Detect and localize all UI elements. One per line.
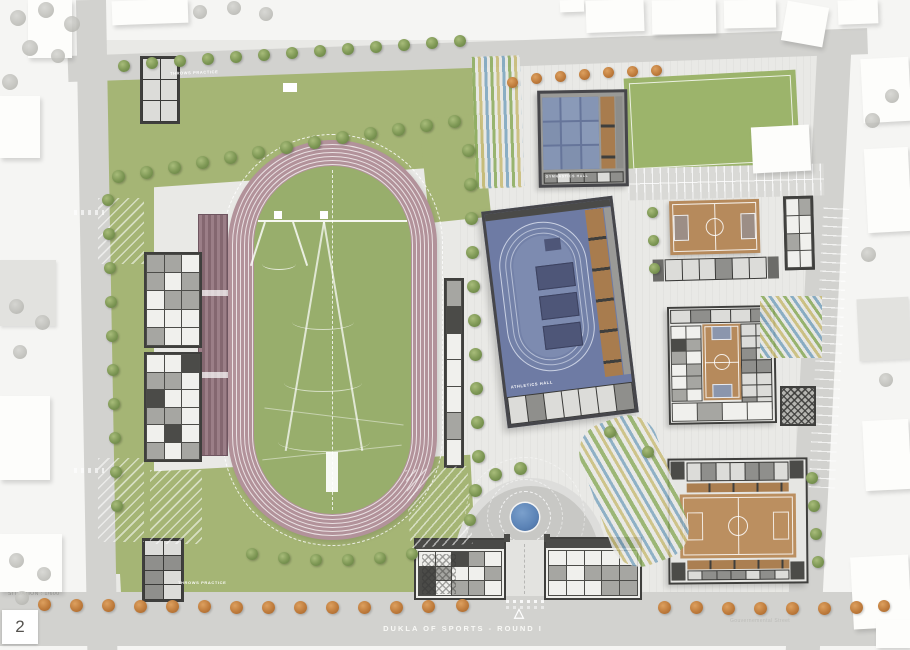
room-cell: [614, 383, 634, 411]
room-cell: [485, 567, 501, 581]
room-cell: [161, 101, 178, 121]
gym-panel: [562, 97, 580, 120]
tree-icon: [106, 330, 118, 342]
gate-post: [504, 534, 510, 542]
tree-icon: [286, 47, 298, 59]
tree-icon: [118, 60, 130, 72]
tree-icon: [146, 57, 158, 69]
page-number: 2: [15, 617, 24, 637]
tree-icon: [464, 178, 477, 191]
room-cell: [671, 327, 685, 339]
tree-icon: [105, 296, 117, 308]
room-cell: [145, 585, 163, 599]
tree-icon: [489, 468, 502, 481]
sector-arc: [292, 314, 354, 330]
tree-icon: [426, 37, 438, 49]
tree-icon: [865, 113, 880, 128]
room-cell: [716, 259, 732, 279]
tree-icon: [462, 144, 475, 157]
room-cell: [447, 413, 461, 438]
tree-icon: [555, 71, 566, 82]
tree-icon: [2, 74, 18, 90]
bball-court: [702, 324, 741, 401]
room-cell: [672, 377, 686, 389]
tree-icon: [786, 602, 799, 615]
tree-icon: [280, 141, 293, 154]
room-cell: [742, 385, 756, 396]
ath-dark-rect: [539, 292, 580, 320]
tree-icon: [690, 601, 703, 614]
tree-icon: [104, 262, 116, 274]
tree-icon: [531, 73, 542, 84]
grandstand-gap: [198, 372, 228, 378]
room-cell: [775, 571, 789, 579]
room-cell: [597, 385, 617, 413]
tree-icon: [112, 170, 125, 183]
bball-bottom: [672, 401, 773, 422]
room-cell: [165, 408, 182, 425]
corner-block: [789, 460, 803, 478]
room-cell: [745, 463, 759, 480]
room-cell: [579, 387, 599, 415]
room-cell: [698, 403, 722, 420]
room-cell: [147, 373, 164, 390]
room-cell: [567, 566, 584, 580]
tree-icon: [168, 161, 181, 174]
tree-icon: [647, 207, 658, 218]
tree-icon: [448, 115, 461, 128]
room-cell: [760, 463, 774, 480]
tree-icon: [370, 41, 382, 53]
gym-panel: [542, 97, 560, 120]
street-label: Gouvernemental Street: [730, 618, 790, 624]
room-cell: [620, 581, 637, 595]
gym-panel: [543, 147, 561, 170]
room-cell: [182, 373, 199, 390]
room-cell: [750, 258, 766, 278]
room-cell: [731, 463, 745, 480]
gym-panel: [582, 146, 600, 169]
room-cell: [746, 571, 760, 579]
sector-line: [264, 407, 403, 425]
room-cell: [787, 251, 799, 268]
room-cell: [182, 425, 199, 442]
site-plan: GYMNASTICS HALL ATHLETICS HALL: [0, 0, 910, 650]
room-cell: [165, 310, 182, 327]
tree-icon: [603, 67, 614, 78]
room-cell: [147, 425, 164, 442]
room-cell: [164, 585, 182, 599]
city-block: [585, 0, 644, 33]
tree-icon: [885, 89, 899, 103]
tree-icon: [364, 127, 377, 140]
tree-icon: [103, 228, 115, 240]
gym-blue-panels: [542, 97, 599, 170]
room-cell: [447, 387, 461, 412]
court-key: [773, 512, 789, 540]
entrance-building-left: [414, 538, 506, 600]
room-cell: [585, 566, 602, 580]
room-cell: [182, 310, 199, 327]
room-cell: [526, 394, 546, 422]
room-cell: [165, 390, 182, 407]
room-cell: [182, 255, 199, 272]
city-block: [876, 620, 910, 648]
room-cell: [742, 361, 756, 372]
grandstand-gap: [198, 290, 228, 296]
court-ne-band: [665, 257, 768, 282]
bld-left-1: [144, 252, 202, 348]
room-cell: [549, 566, 566, 580]
room-cell: [567, 551, 584, 565]
room-cell: [165, 373, 182, 390]
room-cell: [666, 260, 682, 280]
room-cell: [182, 355, 199, 372]
gym-side-strip: [615, 96, 623, 168]
ath-dark-rect: [544, 237, 561, 251]
tree-icon: [469, 348, 482, 361]
room-cell: [787, 216, 799, 233]
room-cell: [447, 281, 461, 306]
bike-rack-annex: [780, 386, 816, 426]
room-cell: [544, 392, 564, 420]
tree-icon: [38, 2, 54, 18]
tree-icon: [420, 119, 433, 132]
tree-icon: [193, 5, 207, 19]
room-cell: [602, 581, 619, 595]
corner-block: [670, 461, 684, 479]
room-cell: [147, 355, 164, 372]
tree-icon: [64, 16, 80, 32]
tree-icon: [604, 426, 616, 438]
tree-icon: [456, 599, 469, 612]
corner-block: [790, 561, 804, 579]
room-cell: [748, 402, 772, 419]
tree-icon: [51, 49, 65, 63]
tree-icon: [465, 212, 478, 225]
room-cell: [672, 339, 686, 351]
room-cell: [567, 581, 584, 595]
tree-icon: [374, 552, 386, 564]
court-circle: [728, 516, 748, 536]
tree-icon: [471, 416, 484, 429]
room-cell: [147, 310, 164, 327]
page-number-box: 2: [2, 610, 38, 644]
tree-icon: [22, 40, 38, 56]
tree-icon: [507, 77, 518, 88]
room-cell: [165, 355, 182, 372]
room-cell: [672, 364, 686, 376]
room-cell: [800, 250, 812, 267]
room-cell: [757, 373, 771, 384]
court-ne-floor: [669, 199, 760, 255]
tree-icon: [109, 432, 121, 444]
tree-icon: [649, 263, 660, 274]
room-cell: [757, 361, 771, 372]
tree-icon: [406, 548, 418, 560]
room-cell: [723, 403, 747, 420]
ath-dark-rect: [535, 262, 576, 290]
room-cell: [145, 571, 163, 585]
tree-icon: [198, 600, 211, 613]
room-cell: [469, 581, 485, 595]
city-block: [112, 0, 189, 25]
court-key: [673, 215, 689, 241]
tree-icon: [166, 600, 179, 613]
tree-icon: [810, 528, 822, 540]
room-cell: [549, 551, 566, 565]
tree-icon: [470, 382, 483, 395]
room-cell: [447, 440, 461, 465]
room-cell: [733, 258, 749, 278]
room-cell: [165, 443, 182, 460]
court-key: [712, 384, 732, 398]
city-block: [0, 96, 40, 158]
bld-bottomleft: [142, 538, 184, 602]
city-block: [751, 125, 811, 174]
tree-icon: [9, 299, 24, 314]
bld-left-2: [144, 352, 202, 462]
bball-top-band: [670, 308, 771, 324]
city-block: [862, 419, 910, 491]
tree-icon: [464, 514, 476, 526]
gymnastics-hall: GYMNASTICS HALL: [537, 89, 629, 188]
planting-stripes: [472, 55, 525, 189]
tree-icon: [13, 345, 27, 359]
tree-icon: [246, 548, 258, 560]
room-cell: [549, 581, 566, 595]
room-cell: [761, 571, 774, 579]
tree-icon: [110, 466, 122, 478]
tree-icon: [392, 123, 405, 136]
corner-block: [671, 562, 685, 580]
room-cell: [682, 259, 698, 279]
room-cell: [716, 463, 730, 480]
tree-icon: [358, 601, 371, 614]
tree-icon: [422, 600, 435, 613]
hall-se-top-band: [686, 462, 788, 482]
throws-practice-label-bottom: THROWS PRACTICE: [178, 580, 226, 585]
tree-icon: [227, 1, 241, 15]
room-cell: [717, 571, 731, 579]
room-cell: [699, 259, 715, 279]
tree-icon: [107, 364, 119, 376]
room-cell: [147, 273, 164, 290]
room-cell: [602, 566, 619, 580]
room-cell: [800, 233, 812, 250]
tree-icon: [108, 398, 120, 410]
tree-icon: [140, 166, 153, 179]
annex-ne: [783, 196, 815, 271]
room-cell: [182, 291, 199, 308]
city-block: [856, 297, 910, 362]
tree-icon: [472, 450, 485, 463]
room-cell: [673, 403, 697, 420]
city-block: [724, 0, 776, 28]
entrance-arrow-icon: △: [514, 606, 524, 620]
tree-icon: [466, 246, 479, 259]
ath-dark-rect: [543, 322, 584, 350]
room-cell: [585, 551, 602, 565]
tree-icon: [15, 591, 29, 605]
infield-square-2: [320, 211, 328, 219]
bball-left-col: [670, 325, 702, 402]
room-cell: [561, 389, 581, 417]
room-cell: [786, 199, 798, 216]
bld-east-stand: [444, 278, 464, 468]
room-cell: [732, 571, 745, 579]
room-cell: [165, 273, 182, 290]
tree-icon: [879, 373, 893, 387]
tree-icon: [861, 247, 876, 262]
hall-se-bottom-band: [687, 570, 789, 581]
tree-icon: [651, 65, 662, 76]
tree-icon: [196, 156, 209, 169]
tree-icon: [310, 554, 322, 566]
crossing-dots: [506, 600, 544, 603]
room-cell: [597, 173, 609, 182]
tree-icon: [336, 131, 349, 144]
room-cell: [143, 101, 160, 121]
room-cell: [161, 80, 178, 100]
gym-panel: [562, 122, 580, 145]
city-block: [850, 555, 910, 630]
hatched-path: [150, 470, 202, 544]
crossing-dots: [506, 606, 544, 609]
tree-icon: [627, 66, 638, 77]
room-cell: [711, 310, 730, 322]
tree-icon: [278, 552, 290, 564]
room-cell: [686, 326, 700, 338]
tree-icon: [467, 280, 480, 293]
tree-icon: [230, 51, 242, 63]
tree-icon: [35, 315, 50, 330]
tree-icon: [850, 601, 863, 614]
plan-title: DUKLA OF SPORTS - ROUND I: [378, 624, 548, 633]
room-cell: [688, 571, 701, 579]
room-cell: [165, 255, 182, 272]
tree-icon: [259, 7, 273, 21]
room-cell: [672, 389, 686, 401]
tree-icon: [37, 567, 51, 581]
room-cell: [703, 571, 716, 579]
tree-icon: [308, 136, 321, 149]
room-cell: [147, 291, 164, 308]
athletics-hall-label: ATHLETICS HALL: [510, 379, 553, 389]
room-cell: [147, 443, 164, 460]
jump-pit: [326, 452, 338, 492]
room-cell: [469, 552, 485, 566]
room-cell: [757, 385, 771, 396]
tree-icon: [111, 500, 123, 512]
room-cell: [147, 390, 164, 407]
room-cell: [182, 443, 199, 460]
tree-icon: [648, 235, 659, 246]
tree-icon: [314, 45, 326, 57]
tree-icon: [102, 599, 115, 612]
gymnastics-hall-label: GYMNASTICS HALL: [546, 174, 589, 179]
gym-panel: [562, 146, 580, 169]
city-block: [652, 0, 717, 35]
tree-icon: [134, 600, 147, 613]
room-cell: [691, 310, 710, 322]
room-cell: [799, 199, 811, 216]
tree-icon: [70, 599, 83, 612]
room-cell: [687, 339, 701, 351]
room-cell: [182, 408, 199, 425]
tree-icon: [326, 601, 339, 614]
gym-panel: [581, 121, 599, 144]
room-cell: [687, 364, 701, 376]
gate-post: [544, 534, 550, 542]
city-block: [838, 0, 879, 25]
room-cell: [702, 463, 716, 480]
tree-icon: [230, 601, 243, 614]
tree-icon: [342, 554, 354, 566]
tree-icon: [390, 601, 403, 614]
tree-icon: [252, 146, 265, 159]
room-cell: [147, 328, 164, 345]
gate-dash: [524, 544, 525, 594]
room-cell: [585, 581, 602, 595]
room-cell: [508, 396, 528, 424]
room-cell: [799, 216, 811, 233]
room-cell: [787, 234, 799, 251]
tree-icon: [262, 601, 275, 614]
room-cell: [742, 373, 756, 384]
hatched-path: [405, 466, 472, 548]
room-cell: [774, 463, 788, 480]
room-cell: [182, 273, 199, 290]
grandstand-west: [198, 214, 228, 456]
room-cell: [147, 255, 164, 272]
gym-panel: [581, 97, 599, 120]
room-cell: [687, 351, 701, 363]
room-cell: [147, 408, 164, 425]
room-cell: [731, 310, 750, 322]
court-ne-side: [768, 256, 780, 278]
room-cell: [485, 581, 501, 595]
equipment-box: [283, 83, 297, 92]
tree-icon: [469, 484, 482, 497]
room-cell: [447, 307, 461, 332]
tree-icon: [658, 601, 671, 614]
tree-icon: [38, 598, 51, 611]
tree-icon: [818, 602, 831, 615]
tree-icon: [812, 556, 824, 568]
room-cell: [182, 328, 199, 345]
tree-icon: [808, 500, 820, 512]
tree-icon: [514, 462, 527, 475]
tree-icon: [878, 600, 890, 612]
tree-icon: [722, 602, 735, 615]
tree-icon: [9, 553, 24, 568]
tree-icon: [579, 69, 590, 80]
tree-icon: [258, 49, 270, 61]
court-ne: [651, 190, 779, 285]
court-key: [711, 326, 731, 340]
city-block: [864, 147, 910, 233]
tree-icon: [806, 472, 818, 484]
room-cell: [742, 349, 756, 360]
room-cell: [143, 80, 160, 100]
tree-icon: [174, 55, 186, 67]
tree-icon: [342, 43, 354, 55]
sector-arc: [284, 374, 362, 392]
tree-icon: [642, 446, 654, 458]
hall-se: [667, 457, 808, 584]
room-cell: [687, 376, 701, 388]
